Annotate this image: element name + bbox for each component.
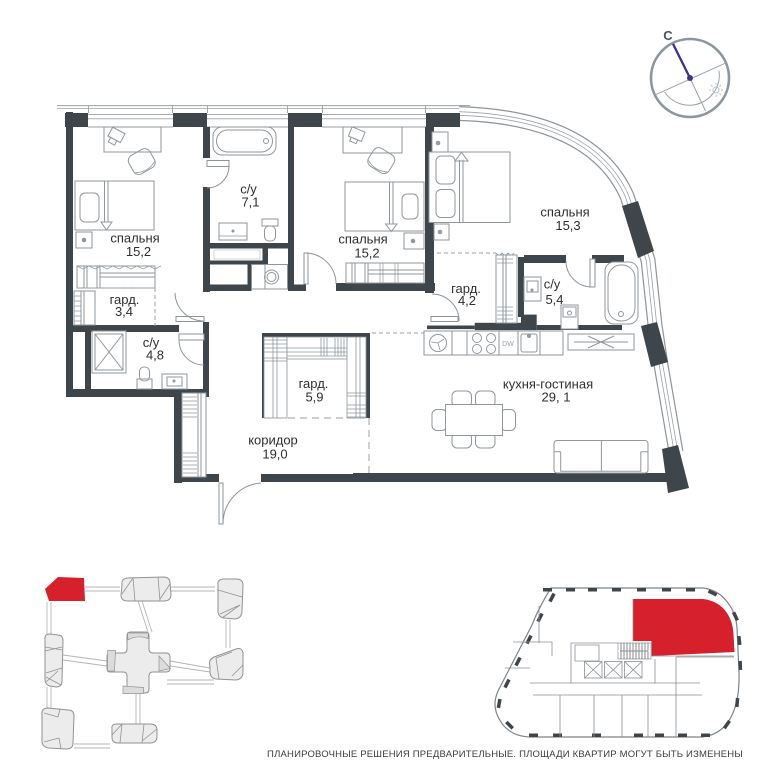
svg-text:4,2: 4,2: [458, 293, 476, 308]
svg-text:3,4: 3,4: [115, 304, 133, 319]
svg-text:15,3: 15,3: [555, 218, 580, 233]
svg-text:коридор: коридор: [248, 433, 298, 448]
svg-text:DW: DW: [502, 341, 514, 348]
svg-text:с/у: с/у: [544, 277, 561, 292]
svg-text:ПЛАНИРОВОЧНЫЕ РЕШЕНИЯ ПРЕДВАРИ: ПЛАНИРОВОЧНЫЕ РЕШЕНИЯ ПРЕДВАРИТЕЛЬНЫЕ. П…: [267, 749, 743, 760]
svg-text:5,4: 5,4: [545, 292, 563, 307]
svg-text:19,0: 19,0: [262, 447, 287, 462]
svg-text:15,2: 15,2: [354, 246, 379, 261]
svg-text:29, 1: 29, 1: [542, 390, 571, 405]
svg-text:спальня: спальня: [338, 232, 387, 247]
svg-text:С: С: [663, 28, 673, 43]
svg-text:15,2: 15,2: [126, 244, 151, 259]
svg-text:5,9: 5,9: [305, 390, 323, 405]
svg-text:4,8: 4,8: [146, 348, 164, 363]
svg-text:7,1: 7,1: [241, 195, 259, 210]
